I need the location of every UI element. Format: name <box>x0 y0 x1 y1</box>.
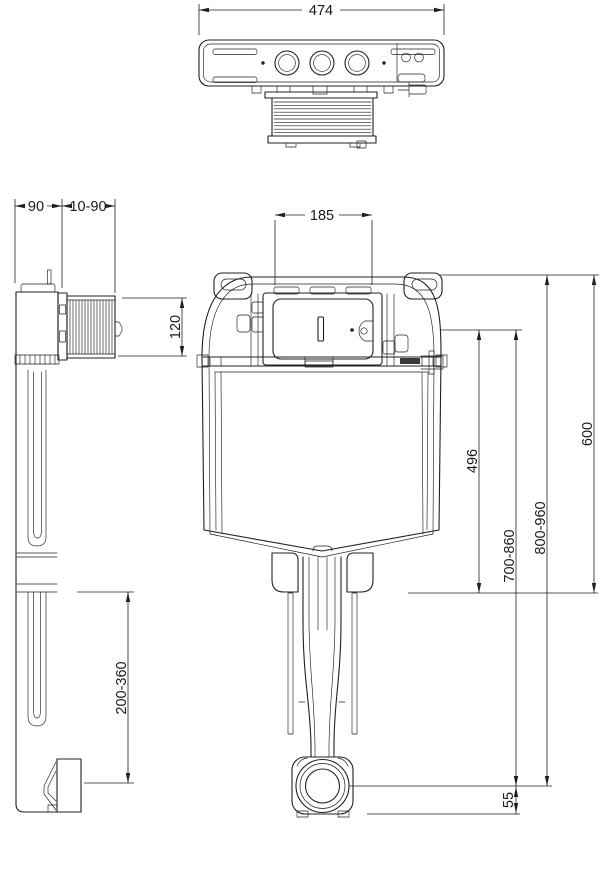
top-slot-right <box>391 49 435 55</box>
water-inlet-stub <box>421 351 443 374</box>
guide-bar-right <box>352 593 357 734</box>
latch-left <box>237 315 250 332</box>
dim-overall-width: 474 <box>199 3 444 35</box>
guide-bar-left <box>288 593 293 734</box>
front-view <box>197 273 447 817</box>
ribbed-tank-block <box>265 92 377 148</box>
dim-label-10-90: 10-90 <box>69 199 106 215</box>
side-clip-fitting <box>398 83 426 97</box>
side-body-top <box>16 292 58 355</box>
tank-panel <box>215 372 428 534</box>
flush-pipe-assembly <box>272 546 373 757</box>
dim-right-stack: 496 700-860 800-960 600 55 <box>349 275 599 814</box>
dim-label-200-360: 200-360 <box>114 661 130 714</box>
top-cap <box>21 284 55 292</box>
technical-drawing-canvas: 474 90 10-90 120 200-360 <box>0 0 600 872</box>
outlet-flange <box>292 757 353 817</box>
side-body-outline <box>16 292 57 812</box>
latch-right <box>395 335 408 352</box>
dim-depth-and-gap: 90 10-90 <box>15 199 115 293</box>
top-view-body <box>199 40 444 86</box>
tank-outline <box>202 277 441 530</box>
dim-shaft-height: 120 <box>118 298 187 356</box>
dim-label-474: 474 <box>309 3 333 19</box>
outlet-elbow <box>44 759 81 812</box>
dim-label-120: 120 <box>168 315 184 339</box>
access-panel-box <box>263 287 382 367</box>
dim-label-185: 185 <box>310 208 334 224</box>
hanger-ear-right <box>404 273 442 299</box>
dim-label-600: 600 <box>580 422 596 446</box>
cistern-installation-drawing: 474 90 10-90 120 200-360 <box>0 0 600 872</box>
dim-outlet-drop: 200-360 <box>77 592 134 783</box>
dim-label-700-860: 700-860 <box>502 529 518 582</box>
pushrod-holes <box>275 51 369 75</box>
access-shaft <box>58 293 122 360</box>
fill-valve-pin <box>48 270 52 284</box>
dim-label-496: 496 <box>465 449 481 473</box>
mount-rail-section <box>15 355 59 364</box>
panel-slot <box>318 317 324 341</box>
dim-label-55: 55 <box>501 792 517 808</box>
dim-label-800-960: 800-960 <box>533 501 549 554</box>
top-slot-left <box>213 49 257 55</box>
dim-label-90: 90 <box>28 199 44 215</box>
top-view <box>199 40 444 148</box>
side-view <box>15 270 122 812</box>
dim-plate-width: 185 <box>275 208 372 285</box>
